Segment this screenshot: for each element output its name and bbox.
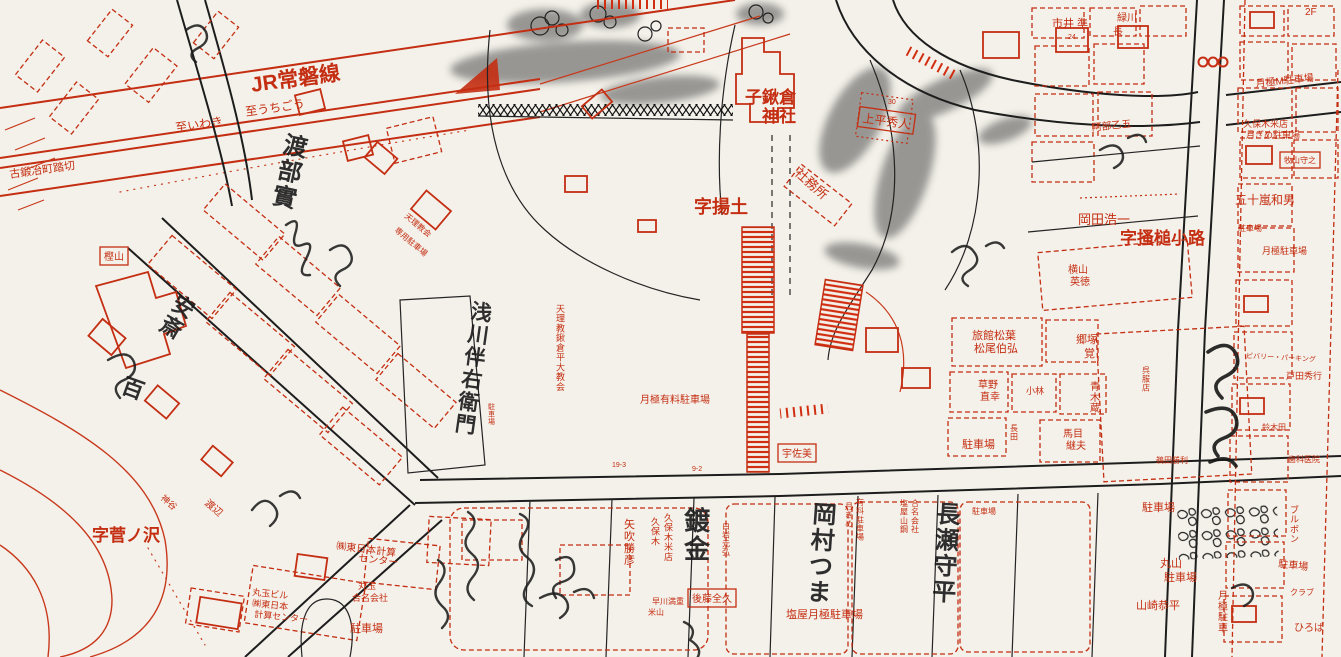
tsukigime-parking-r: 月極駐車場 [1262,245,1307,256]
yoneyama: 米山 [648,607,664,617]
svg-text:覚: 覚 [1084,347,1095,360]
midorikawa-2: 長 [1113,26,1123,38]
svg-text:岡村つま: 岡村つま [806,501,837,607]
svg-text:月極M駐車場: 月極M駐車場 [1255,71,1314,90]
hiroba: ひろば [1294,622,1324,634]
usami: 宇佐美 [778,444,816,462]
igarashi-kazuo: 五十嵐和男 [1235,193,1295,207]
ryokan-matsuba-1: 旅館松葉 [972,328,1016,342]
aza-agetsuchi: 字揚土 [694,196,748,217]
svg-text:歯科医院: 歯科医院 [1288,454,1320,464]
svg-text:至いわき: 至いわき [174,114,223,135]
tsukigime-col-2: 有料駐車場 [856,497,864,542]
pond-outline [301,599,352,657]
shioya-tsukigime-parking: 塩屋月極駐車場 [786,607,863,621]
parcel-no-30: 30 [888,99,896,106]
svg-text:戸田秀行: 戸田秀行 [1286,370,1322,381]
svg-text:駐車場: 駐車場 [350,621,383,635]
svg-text:渡部實: 渡部實 [270,130,311,213]
gofuku-store: 呉服店 [1142,366,1150,392]
svg-text:早川満重: 早川満重 [652,596,684,606]
parcel-no-24: 24 [1068,34,1076,41]
parking-center: 駐車場 [962,437,995,451]
yokoyama-hidenori-2: 英徳 [1070,275,1090,288]
svg-text:米山: 米山 [648,607,664,617]
kokuwagura-shrine-line1: 子鍬倉 [745,87,797,107]
fence-baseline [478,116,733,120]
svg-text:駐車場: 駐車場 [1238,223,1262,233]
svg-text:字菅ノ沢: 字菅ノ沢 [92,525,161,545]
svg-text:英徳: 英徳 [1070,275,1090,288]
fence-row [478,104,733,116]
hw-mekki: 鍍金 [683,506,711,564]
svg-text:ビバリー・パーキング: ビバリー・パーキング [1246,351,1316,364]
aoki-kura: 青木蔵 [1090,380,1100,415]
gotsuka-2: 覚 [1084,347,1095,360]
svg-text:ブルボン: ブルボン [1290,504,1299,544]
hayakawa: 早川満重 [652,596,684,606]
svg-text:字揚土: 字揚土 [694,196,748,217]
manome-2: 継夫 [1066,439,1086,452]
svg-text:2F: 2F [1305,7,1317,18]
tenrikyo-taira-church: 天理教鍬倉平大教会 [556,304,565,392]
svg-text:9-2: 9-2 [692,466,702,473]
tsukigime-col-1: 月ぎめ [845,502,853,528]
kusano-1: 草野 [978,379,998,391]
ryokan-matsuba-2: 松尾伯弘 [974,341,1018,355]
svg-text:小林: 小林 [1026,385,1044,396]
svg-text:長田: 長田 [1010,424,1018,442]
okada-koichi: 岡田浩一 [1078,212,1130,227]
hw-nagase: 長瀬守平 [932,501,962,607]
svg-text:駐車場: 駐車場 [972,506,996,516]
svg-text:呉服店: 呉服店 [1142,366,1150,392]
suzukita: 鈴木田 [1262,422,1286,432]
nagata: 長田 [1010,424,1018,442]
svg-text:安斎: 安斎 [156,291,199,344]
svg-text:鍍金: 鍍金 [683,506,711,564]
club: クラブ [1290,587,1314,597]
svg-text:丸玉: 丸玉 [358,580,376,591]
svg-text:駐車場: 駐車場 [1278,557,1309,573]
hw-anzai: 安斎 [156,291,199,344]
kuboki-rice-parking-2: 月ぎめ駐車場 [1246,129,1300,140]
beverly-parking: ビバリー・パーキング [1246,351,1316,364]
svg-text:緑川: 緑川 [1117,11,1137,24]
makiyama-moriyuki: 牧山守之 [1280,152,1320,168]
svg-text:塩屋月極駐車場: 塩屋月極駐車場 [786,607,863,621]
manome-1: 馬目 [1063,428,1083,440]
maruyama-parking-1: 丸山 [1160,557,1182,570]
svg-text:旅館松葉: 旅館松葉 [972,328,1016,342]
svg-text:青木蔵: 青木蔵 [1090,380,1100,415]
toda-hideyuki: 戸田秀行 [1286,370,1322,381]
parking-sw: 駐車場 [350,621,383,635]
svg-text:月ぎめ駐車場: 月ぎめ駐車場 [1246,129,1300,140]
svg-text:五十嵐和男: 五十嵐和男 [1235,193,1295,207]
parking-mid: 駐車場 [972,506,996,516]
handwriting-layer: 渡部實浅川伴右衛門岡村つま長瀬守平鍍金安斎百 [118,130,962,607]
svg-text:丸山: 丸山 [1160,557,1182,570]
kuboki-v: 久保木 [651,516,660,546]
svg-text:19-3: 19-3 [612,462,626,469]
svg-text:24: 24 [1068,34,1076,41]
platform-comb [593,0,668,9]
svg-text:月極駐車場: 月極駐車場 [1262,245,1307,256]
to-iwaki: 至いわき [174,114,223,135]
svg-text:月極駐車: 月極駐車 [1218,590,1228,634]
svg-text:横山: 横山 [1068,263,1088,276]
parcel-no-9-2: 9-2 [692,466,702,473]
parcel-outlines-topright [983,6,1200,310]
gotsuka-1: 郷塚 [1076,332,1098,346]
svg-text:百: 百 [118,373,147,404]
svg-text:後藤全久: 後藤全久 [692,592,732,605]
svg-text:渡辺: 渡辺 [202,496,226,519]
yabuki-katsuhiko: 矢吹勝彦 [624,517,635,567]
marutama-gomei-2: 合名会社 [352,592,388,603]
yamazaki-kyohei: 山崎恭平 [1136,598,1180,612]
svg-text:松尾伯弘: 松尾伯弘 [974,341,1018,355]
svg-text:30: 30 [888,99,896,106]
svg-text:白岩元弘: 白岩元弘 [722,521,730,557]
kuboki-rice-parking-1: 久保木米店 [1243,118,1288,129]
svg-text:有料駐車場: 有料駐車場 [856,497,864,542]
svg-text:子鍬倉: 子鍬倉 [745,87,797,107]
svg-text:鵜田勝利: 鵜田勝利 [1156,455,1188,465]
tsukigime-paid-parking: 月極有料駐車場 [640,393,710,406]
svg-text:久保木米店: 久保木米店 [1243,118,1288,129]
svg-text:市井 準: 市井 準 [1052,16,1088,30]
svg-text:宇佐美: 宇佐美 [782,447,812,460]
parking-ne: 駐車場 [1238,223,1262,233]
svg-text:郷塚: 郷塚 [1076,332,1098,346]
steps-comb [780,404,829,419]
svg-text:矢吹勝彦: 矢吹勝彦 [624,517,635,567]
svg-text:継夫: 継夫 [1066,439,1086,452]
svg-text:ひろば: ひろば [1294,622,1324,634]
hw-okamura: 岡村つま [806,501,837,607]
svg-text:長瀬守平: 長瀬守平 [932,501,962,607]
svg-text:樫山: 樫山 [104,250,124,263]
kuboki-rice-v: 久保木米店 [664,512,673,562]
watanabe: 渡辺 [202,496,226,519]
svg-text:阿部乙五: 阿部乙五 [1091,117,1132,134]
svg-text:合名会社: 合名会社 [911,498,919,534]
svg-text:神谷: 神谷 [159,492,180,512]
parcel-no-19-3: 19-3 [612,462,626,469]
dental-clinic: 歯科医院 [1288,454,1320,464]
uda-katsutoshi: 鵜田勝利 [1156,455,1188,465]
aza-kakitsuchi-koji: 字搔槌小路 [1120,228,1206,248]
svg-text:長: 長 [1113,26,1123,38]
jr-joban-line: JR常磐線 [249,61,341,97]
shiraiwa-motohiro: 白岩元弘 [722,521,730,557]
rotary-circles [1199,58,1228,67]
ichii: 市井 準 [1052,16,1088,30]
kusano-2: 直幸 [980,390,1000,403]
svg-text:岡田浩一: 岡田浩一 [1078,212,1130,227]
kamiya: 神谷 [159,492,180,512]
yokoyama-hidenori-1: 横山 [1068,263,1088,276]
svg-text:JR常磐線: JR常磐線 [249,61,341,97]
svg-text:鈴木田: 鈴木田 [1262,422,1286,432]
bourbon: ブルボン [1290,504,1299,544]
kokuwagura-shrine-line2: 神社 [762,106,796,126]
abe-otogo: 阿部乙五 [1091,117,1132,134]
svg-text:直幸: 直幸 [980,390,1000,403]
cadastral-map-canvas: JR常磐線至うちごう至いわき古鍛冶町踏切子鍬倉神社社務所字揚土上平秀人岡田浩一字… [0,0,1341,657]
hw-momo: 百 [118,373,147,404]
svg-text:久保木: 久保木 [651,516,660,546]
svg-text:山崎恭平: 山崎恭平 [1136,598,1180,612]
goto-zenkyu: 後藤全久 [688,589,736,607]
shioya-yamako-1: 塩屋山鋼 [900,498,908,534]
svg-text:月極有料駐車場: 月極有料駐車場 [640,393,710,406]
hw-watanabe: 渡部實 [270,130,311,213]
svg-text:駐車場: 駐車場 [962,437,995,451]
svg-text:塩屋山鋼: 塩屋山鋼 [900,498,908,534]
scanned-cadastral-map: JR常磐線至うちごう至いわき古鍛冶町踏切子鍬倉神社社務所字揚土上平秀人岡田浩一字… [0,0,1341,657]
parking-se: 駐車場 [1142,500,1175,514]
shioya-yamako-2: 合名会社 [911,498,919,534]
midorikawa-1: 緑川 [1117,11,1137,24]
svg-text:神社: 神社 [762,106,796,126]
svg-text:クラブ: クラブ [1290,587,1314,597]
svg-text:久保木米店: 久保木米店 [664,512,673,562]
svg-text:駐車場: 駐車場 [1142,500,1175,514]
floor-2f: 2F [1305,7,1317,18]
tsukigime-col-3: 月極駐車 [1218,590,1228,634]
svg-text:月ぎめ: 月ぎめ [845,502,853,528]
marutama-gomei-1: 丸玉 [358,580,376,591]
parking-fr: 駐車場 [1278,557,1309,573]
aza-suganosawa: 字菅ノ沢 [92,525,161,545]
svg-text:牧山守之: 牧山守之 [1284,155,1316,165]
svg-text:草野: 草野 [978,379,998,391]
svg-text:駐車場: 駐車場 [1164,570,1197,584]
maruyama-parking-2: 駐車場 [1164,570,1197,584]
kashiyama: 樫山 [100,247,128,265]
svg-text:字搔槌小路: 字搔槌小路 [1120,228,1206,248]
svg-text:馬目: 馬目 [1063,428,1083,440]
tsukigime-m-parking: 月極M駐車場 [1255,71,1314,90]
kobayashi: 小林 [1026,385,1044,396]
slope-comb [906,46,957,79]
svg-text:駐車場: 駐車場 [488,402,495,426]
svg-text:合名会社: 合名会社 [352,592,388,603]
svg-text:天理教鍬倉平大教会: 天理教鍬倉平大教会 [556,304,565,392]
contour-lines [0,390,205,657]
parking-v: 駐車場 [488,402,495,426]
